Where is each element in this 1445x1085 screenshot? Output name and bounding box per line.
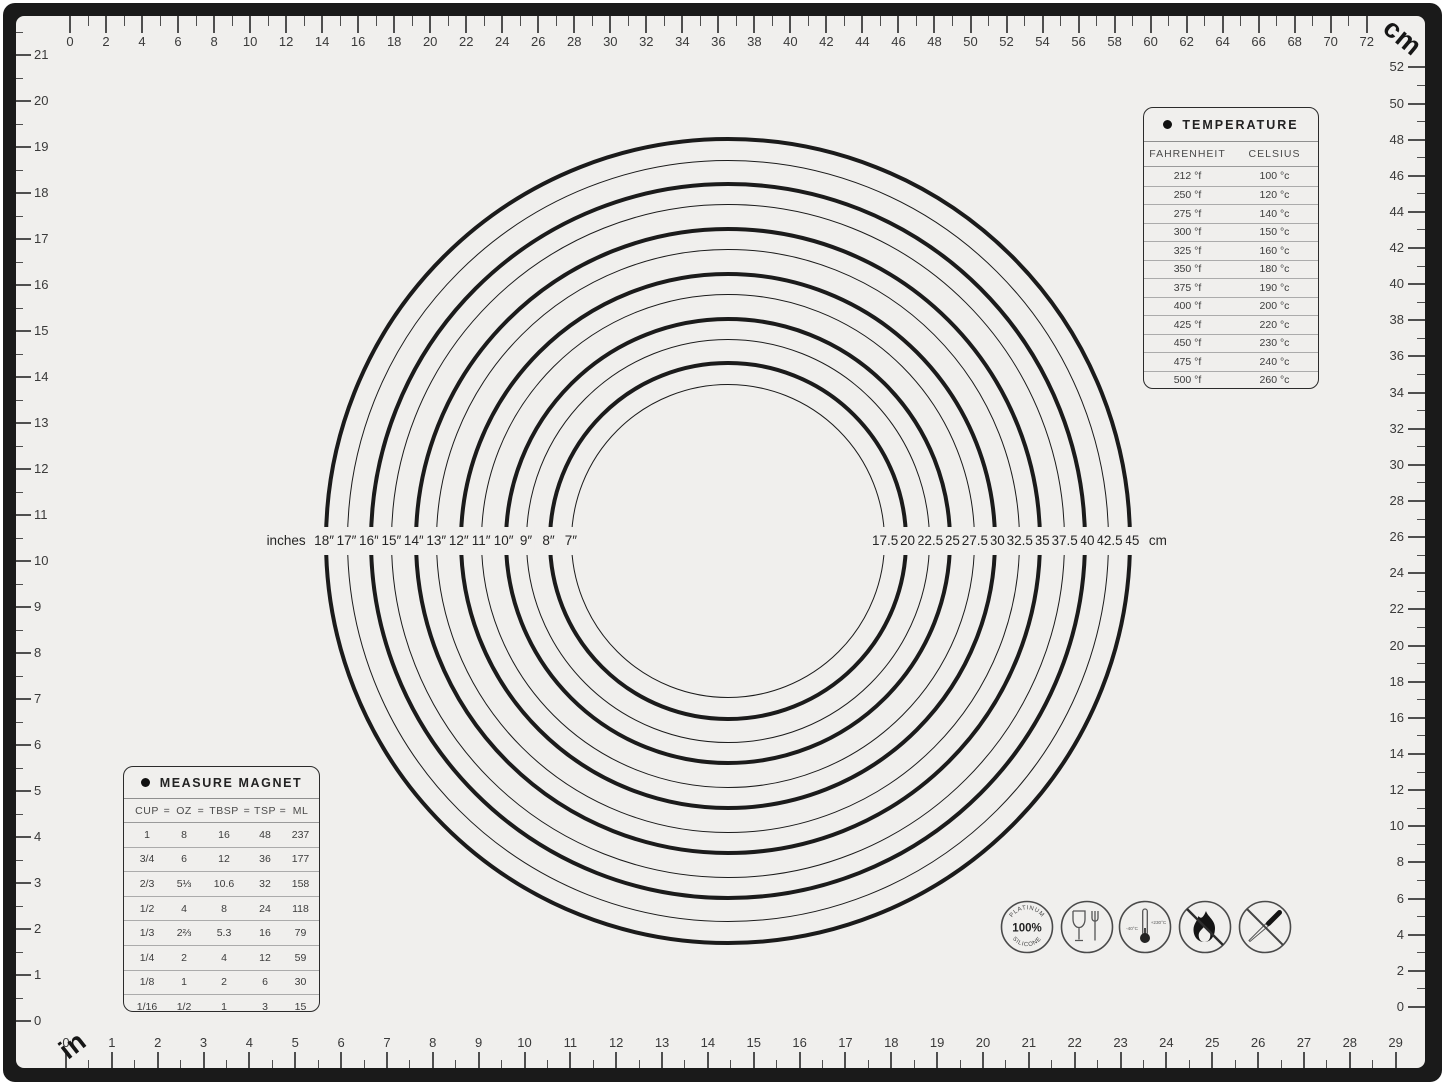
ruler-number: 7 bbox=[372, 1035, 402, 1050]
ruler-tick bbox=[661, 1052, 663, 1068]
ruler-tick bbox=[16, 744, 31, 746]
ruler-number: 34 bbox=[1372, 385, 1404, 401]
ring-cm-label: 32.5 bbox=[1004, 527, 1036, 555]
measure-value: 4 bbox=[221, 952, 227, 964]
ruler-tick bbox=[484, 16, 485, 26]
ruler-tick bbox=[1417, 591, 1425, 592]
ruler-tick bbox=[1408, 717, 1425, 719]
ruler-tick bbox=[465, 16, 467, 33]
ruler-tick bbox=[357, 16, 359, 33]
measure-value: 1/2 bbox=[177, 1001, 192, 1013]
temperature-table-rows: 212 °f100 °c250 °f120 °c275 °f140 °c300 … bbox=[1144, 167, 1318, 389]
ruler-tick bbox=[1395, 1052, 1397, 1068]
ruler-number: 16 bbox=[34, 277, 66, 293]
fork-shape bbox=[1092, 911, 1098, 941]
ruler-tick bbox=[1240, 16, 1241, 26]
silicone-arc-text: SILICONE bbox=[1011, 936, 1043, 948]
ruler-tick bbox=[936, 1052, 938, 1068]
measure-table-rows: 1816482373/4612361772/35⅓10.6321581/2482… bbox=[124, 823, 319, 1019]
ruler-number: 58 bbox=[1100, 34, 1130, 49]
bullet-dot-icon bbox=[141, 778, 150, 787]
ruler-number: 2 bbox=[91, 34, 121, 49]
fahrenheit-value: 250 °f bbox=[1144, 189, 1231, 201]
ruler-tick bbox=[1028, 1052, 1030, 1068]
ruler-tick bbox=[1042, 16, 1044, 33]
ruler-number: 38 bbox=[739, 34, 769, 49]
ruler-tick bbox=[16, 308, 23, 309]
ruler-tick bbox=[868, 1060, 869, 1068]
ruler-number: 56 bbox=[1064, 34, 1094, 49]
measure-value: 1 bbox=[221, 1001, 227, 1013]
ruler-tick bbox=[1006, 16, 1008, 33]
ruler-tick bbox=[1408, 500, 1425, 502]
ruler-tick bbox=[180, 1060, 181, 1068]
fahrenheit-value: 500 °f bbox=[1144, 374, 1231, 386]
ruler-tick bbox=[547, 1060, 548, 1068]
ring-inch-label: 7″ bbox=[562, 527, 580, 555]
ruler-number: 20 bbox=[1372, 638, 1404, 654]
ruler-tick bbox=[1312, 16, 1313, 26]
ruler-tick bbox=[664, 16, 665, 26]
ruler-tick bbox=[196, 16, 197, 26]
measure-value: 3/4 bbox=[140, 853, 155, 865]
celsius-value: 100 °c bbox=[1231, 170, 1318, 182]
ruler-number: 4 bbox=[127, 34, 157, 49]
fahrenheit-value: 375 °f bbox=[1144, 282, 1231, 294]
ruler-number: 36 bbox=[703, 34, 733, 49]
ruler-number: 48 bbox=[919, 34, 949, 49]
ruler-number: 40 bbox=[1372, 276, 1404, 292]
measure-value: 1/16 bbox=[137, 1001, 157, 1013]
measure-value: 4 bbox=[181, 903, 187, 915]
ruler-number: 22 bbox=[451, 34, 481, 49]
measure-value: 36 bbox=[259, 853, 271, 865]
measure-row: 1/161/21315 bbox=[124, 994, 319, 1019]
ruler-tick bbox=[1417, 410, 1425, 411]
ruler-tick bbox=[1417, 157, 1425, 158]
temperature-table-title: TEMPERATURE bbox=[1144, 108, 1318, 142]
ruler-tick bbox=[1168, 16, 1169, 26]
ruler-tick bbox=[1281, 1060, 1282, 1068]
celsius-column-header: CELSIUS bbox=[1231, 148, 1318, 160]
ruler-tick bbox=[16, 882, 31, 884]
measure-value: 1 bbox=[181, 976, 187, 988]
ring-inch-label: 12″ bbox=[446, 527, 472, 555]
measure-value: 6 bbox=[181, 853, 187, 865]
ruler-tick bbox=[1408, 753, 1425, 755]
ruler-tick bbox=[952, 16, 953, 26]
svg-text:SILICONE: SILICONE bbox=[1011, 936, 1043, 948]
ruler-tick bbox=[1222, 16, 1224, 33]
measure-row-grid: 181648237 bbox=[124, 823, 319, 847]
ruler-number: 4 bbox=[1372, 927, 1404, 943]
ruler-tick bbox=[524, 1052, 526, 1068]
ruler-tick bbox=[16, 790, 31, 792]
ruler-number: 8 bbox=[34, 645, 66, 661]
ruler-number: 28 bbox=[1372, 493, 1404, 509]
ruler-number: 42 bbox=[1372, 240, 1404, 256]
ruler-tick bbox=[69, 16, 71, 33]
food-safe-icon bbox=[1059, 899, 1115, 955]
ruler-tick bbox=[1326, 1060, 1327, 1068]
ruler-number: 60 bbox=[1136, 34, 1166, 49]
ruler-tick bbox=[1417, 880, 1425, 881]
ruler-number: 2 bbox=[1372, 963, 1404, 979]
ruler-tick bbox=[412, 16, 413, 26]
ruler-tick bbox=[520, 16, 521, 26]
ruler-tick bbox=[822, 1060, 823, 1068]
ruler-number: 20 bbox=[34, 93, 66, 109]
ruler-number: 9 bbox=[34, 599, 66, 615]
ruler-number: 32 bbox=[1372, 421, 1404, 437]
ruler-number: 6 bbox=[1372, 891, 1404, 907]
ruler-tick bbox=[1408, 1006, 1425, 1008]
ruler-number: 70 bbox=[1316, 34, 1346, 49]
ruler-tick bbox=[569, 1052, 571, 1068]
ruler-tick bbox=[16, 584, 23, 585]
measure-row: 3/461236177 bbox=[124, 847, 319, 872]
ruler-tick bbox=[448, 16, 449, 26]
celsius-value: 180 °c bbox=[1231, 263, 1318, 275]
ruler-number: 10 bbox=[1372, 818, 1404, 834]
ruler-tick bbox=[501, 16, 503, 33]
ruler-number: 10 bbox=[235, 34, 265, 49]
ruler-tick bbox=[294, 1052, 296, 1068]
measure-value: 16 bbox=[218, 829, 230, 841]
ring-cm-label: 37.5 bbox=[1048, 527, 1080, 555]
ruler-number: 20 bbox=[415, 34, 445, 49]
ruler-number: 27 bbox=[1289, 1035, 1319, 1050]
ruler-number: 5 bbox=[34, 783, 66, 799]
ruler-tick bbox=[16, 330, 31, 332]
ruler-tick bbox=[16, 814, 23, 815]
ruler-tick bbox=[16, 400, 23, 401]
ruler-tick bbox=[1294, 16, 1296, 33]
ruler-tick bbox=[429, 16, 431, 33]
ruler-number: 5 bbox=[280, 1035, 310, 1050]
measure-value: 24 bbox=[259, 903, 271, 915]
ruler-tick bbox=[16, 78, 23, 79]
measure-value: 2 bbox=[221, 976, 227, 988]
temperature-row: 350 °f180 °c bbox=[1144, 260, 1318, 279]
ruler-tick bbox=[1408, 861, 1425, 863]
ruler-number: 8 bbox=[199, 34, 229, 49]
measure-title-text: MEASURE MAGNET bbox=[160, 776, 303, 790]
ruler-tick bbox=[16, 262, 23, 263]
measure-value: 1 bbox=[144, 829, 150, 841]
ruler-tick bbox=[88, 1060, 89, 1068]
ruler-number: 44 bbox=[1372, 204, 1404, 220]
measure-value: 177 bbox=[292, 853, 310, 865]
ruler-tick bbox=[134, 1060, 135, 1068]
measure-value: 30 bbox=[295, 976, 307, 988]
ruler-tick bbox=[1417, 519, 1425, 520]
ruler-number: 24 bbox=[1151, 1035, 1181, 1050]
ruler-tick bbox=[376, 16, 377, 26]
ruler-number: 52 bbox=[1372, 59, 1404, 75]
ruler-number: 25 bbox=[1197, 1035, 1227, 1050]
celsius-value: 200 °c bbox=[1231, 300, 1318, 312]
ruler-tick bbox=[1186, 16, 1188, 33]
ruler-number: 34 bbox=[667, 34, 697, 49]
ruler-number: 14 bbox=[693, 1035, 723, 1050]
ruler-tick bbox=[1417, 229, 1425, 230]
ruler-tick bbox=[1408, 572, 1425, 574]
ruler-number: 15 bbox=[739, 1035, 769, 1050]
ruler-number: 44 bbox=[847, 34, 877, 49]
measure-value: 1/3 bbox=[140, 927, 155, 939]
ruler-tick bbox=[16, 836, 31, 838]
measure-value: 158 bbox=[292, 878, 310, 890]
ruler-tick bbox=[1408, 789, 1425, 791]
temperature-row: 212 °f100 °c bbox=[1144, 167, 1318, 186]
ruler-tick bbox=[1408, 428, 1425, 430]
ruler-number: 3 bbox=[189, 1035, 219, 1050]
ring-cm-label: 27.5 bbox=[959, 527, 991, 555]
ruler-tick bbox=[16, 860, 23, 861]
ruler-tick bbox=[478, 1052, 480, 1068]
temperature-row: 400 °f200 °c bbox=[1144, 297, 1318, 316]
ruler-number: 16 bbox=[343, 34, 373, 49]
ruler-tick bbox=[16, 652, 31, 654]
ruler-tick bbox=[970, 16, 972, 33]
measure-value: 79 bbox=[295, 927, 307, 939]
ruler-tick bbox=[1408, 970, 1425, 972]
measure-row-grid: 1/32⅔5.31679 bbox=[124, 921, 319, 945]
ruler-number: 28 bbox=[559, 34, 589, 49]
temperature-row: 325 °f160 °c bbox=[1144, 241, 1318, 260]
ruler-number: 18 bbox=[379, 34, 409, 49]
ruler-tick bbox=[799, 1052, 801, 1068]
ruler-number: 36 bbox=[1372, 348, 1404, 364]
svg-text:PLATINUM: PLATINUM bbox=[1009, 905, 1045, 918]
measure-column-header: TSP bbox=[254, 805, 276, 817]
ruler-number: 0 bbox=[34, 1013, 66, 1029]
ring-inch-label: 10″ bbox=[491, 527, 517, 555]
ruler-tick bbox=[1143, 1060, 1144, 1068]
fahrenheit-value: 325 °f bbox=[1144, 245, 1231, 257]
measure-conversion-table: MEASURE MAGNET CUP=OZ=TBSP=TSP=ML 181648… bbox=[123, 766, 320, 1012]
ruler-tick bbox=[124, 16, 125, 26]
ruler-tick bbox=[730, 1060, 731, 1068]
ruler-tick bbox=[556, 16, 557, 26]
ruler-tick bbox=[1096, 16, 1097, 26]
ruler-tick bbox=[933, 16, 935, 33]
ruler-tick bbox=[861, 16, 863, 33]
celsius-value: 230 °c bbox=[1231, 337, 1318, 349]
ruler-tick bbox=[386, 1052, 388, 1068]
ruler-number: 19 bbox=[34, 139, 66, 155]
ruler-number: 46 bbox=[1372, 168, 1404, 184]
ruler-number: 28 bbox=[1335, 1035, 1365, 1050]
temperature-row: 275 °f140 °c bbox=[1144, 204, 1318, 223]
measure-value: 1/8 bbox=[140, 976, 155, 988]
knife-blade bbox=[1249, 923, 1269, 942]
fahrenheit-value: 475 °f bbox=[1144, 356, 1231, 368]
ruler-number: 10 bbox=[510, 1035, 540, 1050]
ruler-tick bbox=[1051, 1060, 1052, 1068]
temperature-row: 375 °f190 °c bbox=[1144, 278, 1318, 297]
ruler-tick bbox=[1074, 1052, 1076, 1068]
ruler-tick bbox=[141, 16, 143, 33]
ruler-tick bbox=[1211, 1052, 1213, 1068]
fahrenheit-value: 212 °f bbox=[1144, 170, 1231, 182]
ruler-number: 10 bbox=[34, 553, 66, 569]
ruler-tick bbox=[88, 16, 89, 26]
ruler-tick bbox=[16, 952, 23, 953]
celsius-value: 150 °c bbox=[1231, 226, 1318, 238]
ruler-tick bbox=[1408, 392, 1425, 394]
ruler-number: 17 bbox=[34, 231, 66, 247]
ruler-tick bbox=[988, 16, 989, 26]
ruler-tick bbox=[1258, 16, 1260, 33]
ruler-tick bbox=[213, 16, 215, 33]
ruler-number: 32 bbox=[631, 34, 661, 49]
ruler-tick bbox=[1417, 374, 1425, 375]
ruler-tick bbox=[16, 698, 31, 700]
measure-value: 118 bbox=[292, 903, 309, 915]
ruler-tick bbox=[1417, 85, 1425, 86]
ruler-tick bbox=[736, 16, 737, 26]
max-temp-text: +230°C bbox=[1151, 920, 1167, 925]
ruler-tick bbox=[16, 676, 23, 677]
ruler-tick bbox=[1417, 808, 1425, 809]
ruler-tick bbox=[615, 1052, 617, 1068]
ruler-number: 30 bbox=[595, 34, 625, 49]
measure-row-grid: 1/4241259 bbox=[124, 946, 319, 970]
ruler-tick bbox=[1303, 1052, 1305, 1068]
ruler-tick bbox=[1078, 16, 1080, 33]
celsius-value: 220 °c bbox=[1231, 319, 1318, 331]
ruler-tick bbox=[982, 1052, 984, 1068]
ruler-tick bbox=[16, 146, 31, 148]
no-open-flame-icon bbox=[1177, 899, 1233, 955]
ruler-tick bbox=[1366, 16, 1368, 33]
ruler-tick bbox=[16, 1020, 31, 1022]
ruler-tick bbox=[16, 722, 23, 723]
measure-table-title: MEASURE MAGNET bbox=[124, 767, 319, 799]
measure-value: 8 bbox=[181, 829, 187, 841]
ruler-tick bbox=[16, 606, 31, 608]
ruler-number: 7 bbox=[34, 691, 66, 707]
ruler-tick bbox=[1024, 16, 1025, 26]
ruler-number: 12 bbox=[34, 461, 66, 477]
ruler-tick bbox=[645, 16, 647, 33]
equals-sign: = bbox=[198, 805, 205, 817]
celsius-value: 240 °c bbox=[1231, 356, 1318, 368]
ruler-tick bbox=[880, 16, 881, 26]
ruler-tick bbox=[1417, 121, 1425, 122]
measure-row: 2/35⅓10.632158 bbox=[124, 871, 319, 896]
ruler-number: 24 bbox=[487, 34, 517, 49]
ruler-tick bbox=[684, 1060, 685, 1068]
temperature-row: 450 °f230 °c bbox=[1144, 334, 1318, 353]
measure-row: 1/4241259 bbox=[124, 945, 319, 970]
measure-column-header: TBSP bbox=[209, 805, 238, 817]
ruler-number: 11 bbox=[34, 507, 66, 523]
fahrenheit-value: 275 °f bbox=[1144, 208, 1231, 220]
measure-value: 15 bbox=[295, 1001, 307, 1013]
ruler-number: 26 bbox=[1372, 529, 1404, 545]
ruler-tick bbox=[593, 1060, 594, 1068]
ruler-tick bbox=[340, 1052, 342, 1068]
ruler-number: 26 bbox=[523, 34, 553, 49]
wine-glass-shape bbox=[1073, 911, 1085, 941]
ruler-tick bbox=[16, 560, 31, 562]
celsius-value: 140 °c bbox=[1231, 208, 1318, 220]
ring-cm-label: 22.5 bbox=[914, 527, 946, 555]
ruler-tick bbox=[1417, 699, 1425, 700]
ruler-tick bbox=[700, 16, 701, 26]
no-knife-icon bbox=[1237, 899, 1293, 955]
ruler-tick bbox=[897, 16, 899, 33]
ruler-number: 26 bbox=[1243, 1035, 1273, 1050]
ruler-tick bbox=[16, 170, 23, 171]
ruler-number: 4 bbox=[34, 829, 66, 845]
ruler-number: 6 bbox=[34, 737, 66, 753]
ruler-tick bbox=[639, 1060, 640, 1068]
ruler-tick bbox=[1189, 1060, 1190, 1068]
ruler-tick bbox=[16, 284, 31, 286]
measure-value: 2 bbox=[181, 952, 187, 964]
ruler-number: 22 bbox=[1060, 1035, 1090, 1050]
ring-cm-label: 17.5 bbox=[869, 527, 901, 555]
ruler-tick bbox=[1408, 608, 1425, 610]
ruler-tick bbox=[304, 16, 305, 26]
ruler-number: 42 bbox=[811, 34, 841, 49]
ring-inch-label: 9″ bbox=[517, 527, 535, 555]
ruler-number: 20 bbox=[968, 1035, 998, 1050]
ruler-tick bbox=[707, 1052, 709, 1068]
temperature-row: 425 °f220 °c bbox=[1144, 315, 1318, 334]
measure-value: 12 bbox=[218, 853, 230, 865]
ruler-tick bbox=[916, 16, 917, 26]
ruler-tick bbox=[914, 1060, 915, 1068]
ruler-tick bbox=[1417, 988, 1425, 989]
measure-row: 1/812630 bbox=[124, 970, 319, 995]
ruler-tick bbox=[1060, 16, 1061, 26]
ruler-number: 12 bbox=[1372, 782, 1404, 798]
ruler-number: 14 bbox=[307, 34, 337, 49]
ruler-tick bbox=[717, 16, 719, 33]
ruler-number: 11 bbox=[555, 1035, 585, 1050]
ruler-tick bbox=[1408, 175, 1425, 177]
platinum-arc-text: PLATINUM bbox=[1009, 905, 1045, 918]
ruler-tick bbox=[157, 1052, 159, 1068]
measure-value: 16 bbox=[259, 927, 271, 939]
measure-value: 2/3 bbox=[140, 878, 155, 890]
measure-value: 59 bbox=[295, 952, 307, 964]
ruler-number: 21 bbox=[1014, 1035, 1044, 1050]
ruler-number: 29 bbox=[1381, 1035, 1411, 1050]
ruler-tick bbox=[609, 16, 611, 33]
measure-row-grid: 1/161/21315 bbox=[124, 995, 319, 1019]
ruler-number: 8 bbox=[418, 1035, 448, 1050]
ruler-tick bbox=[1408, 536, 1425, 538]
cm-axis-label: cm bbox=[1146, 527, 1170, 555]
ruler-number: 48 bbox=[1372, 132, 1404, 148]
ruler-tick bbox=[1348, 16, 1349, 26]
ruler-number: 12 bbox=[601, 1035, 631, 1050]
measure-row-grid: 1/24824118 bbox=[124, 897, 319, 921]
ruler-number: 4 bbox=[234, 1035, 264, 1050]
ruler-number: 16 bbox=[785, 1035, 815, 1050]
ruler-tick bbox=[16, 974, 31, 976]
ruler-number: 1 bbox=[34, 967, 66, 983]
ruler-tick bbox=[1165, 1052, 1167, 1068]
ruler-tick bbox=[177, 16, 179, 33]
ruler-tick bbox=[16, 928, 31, 930]
